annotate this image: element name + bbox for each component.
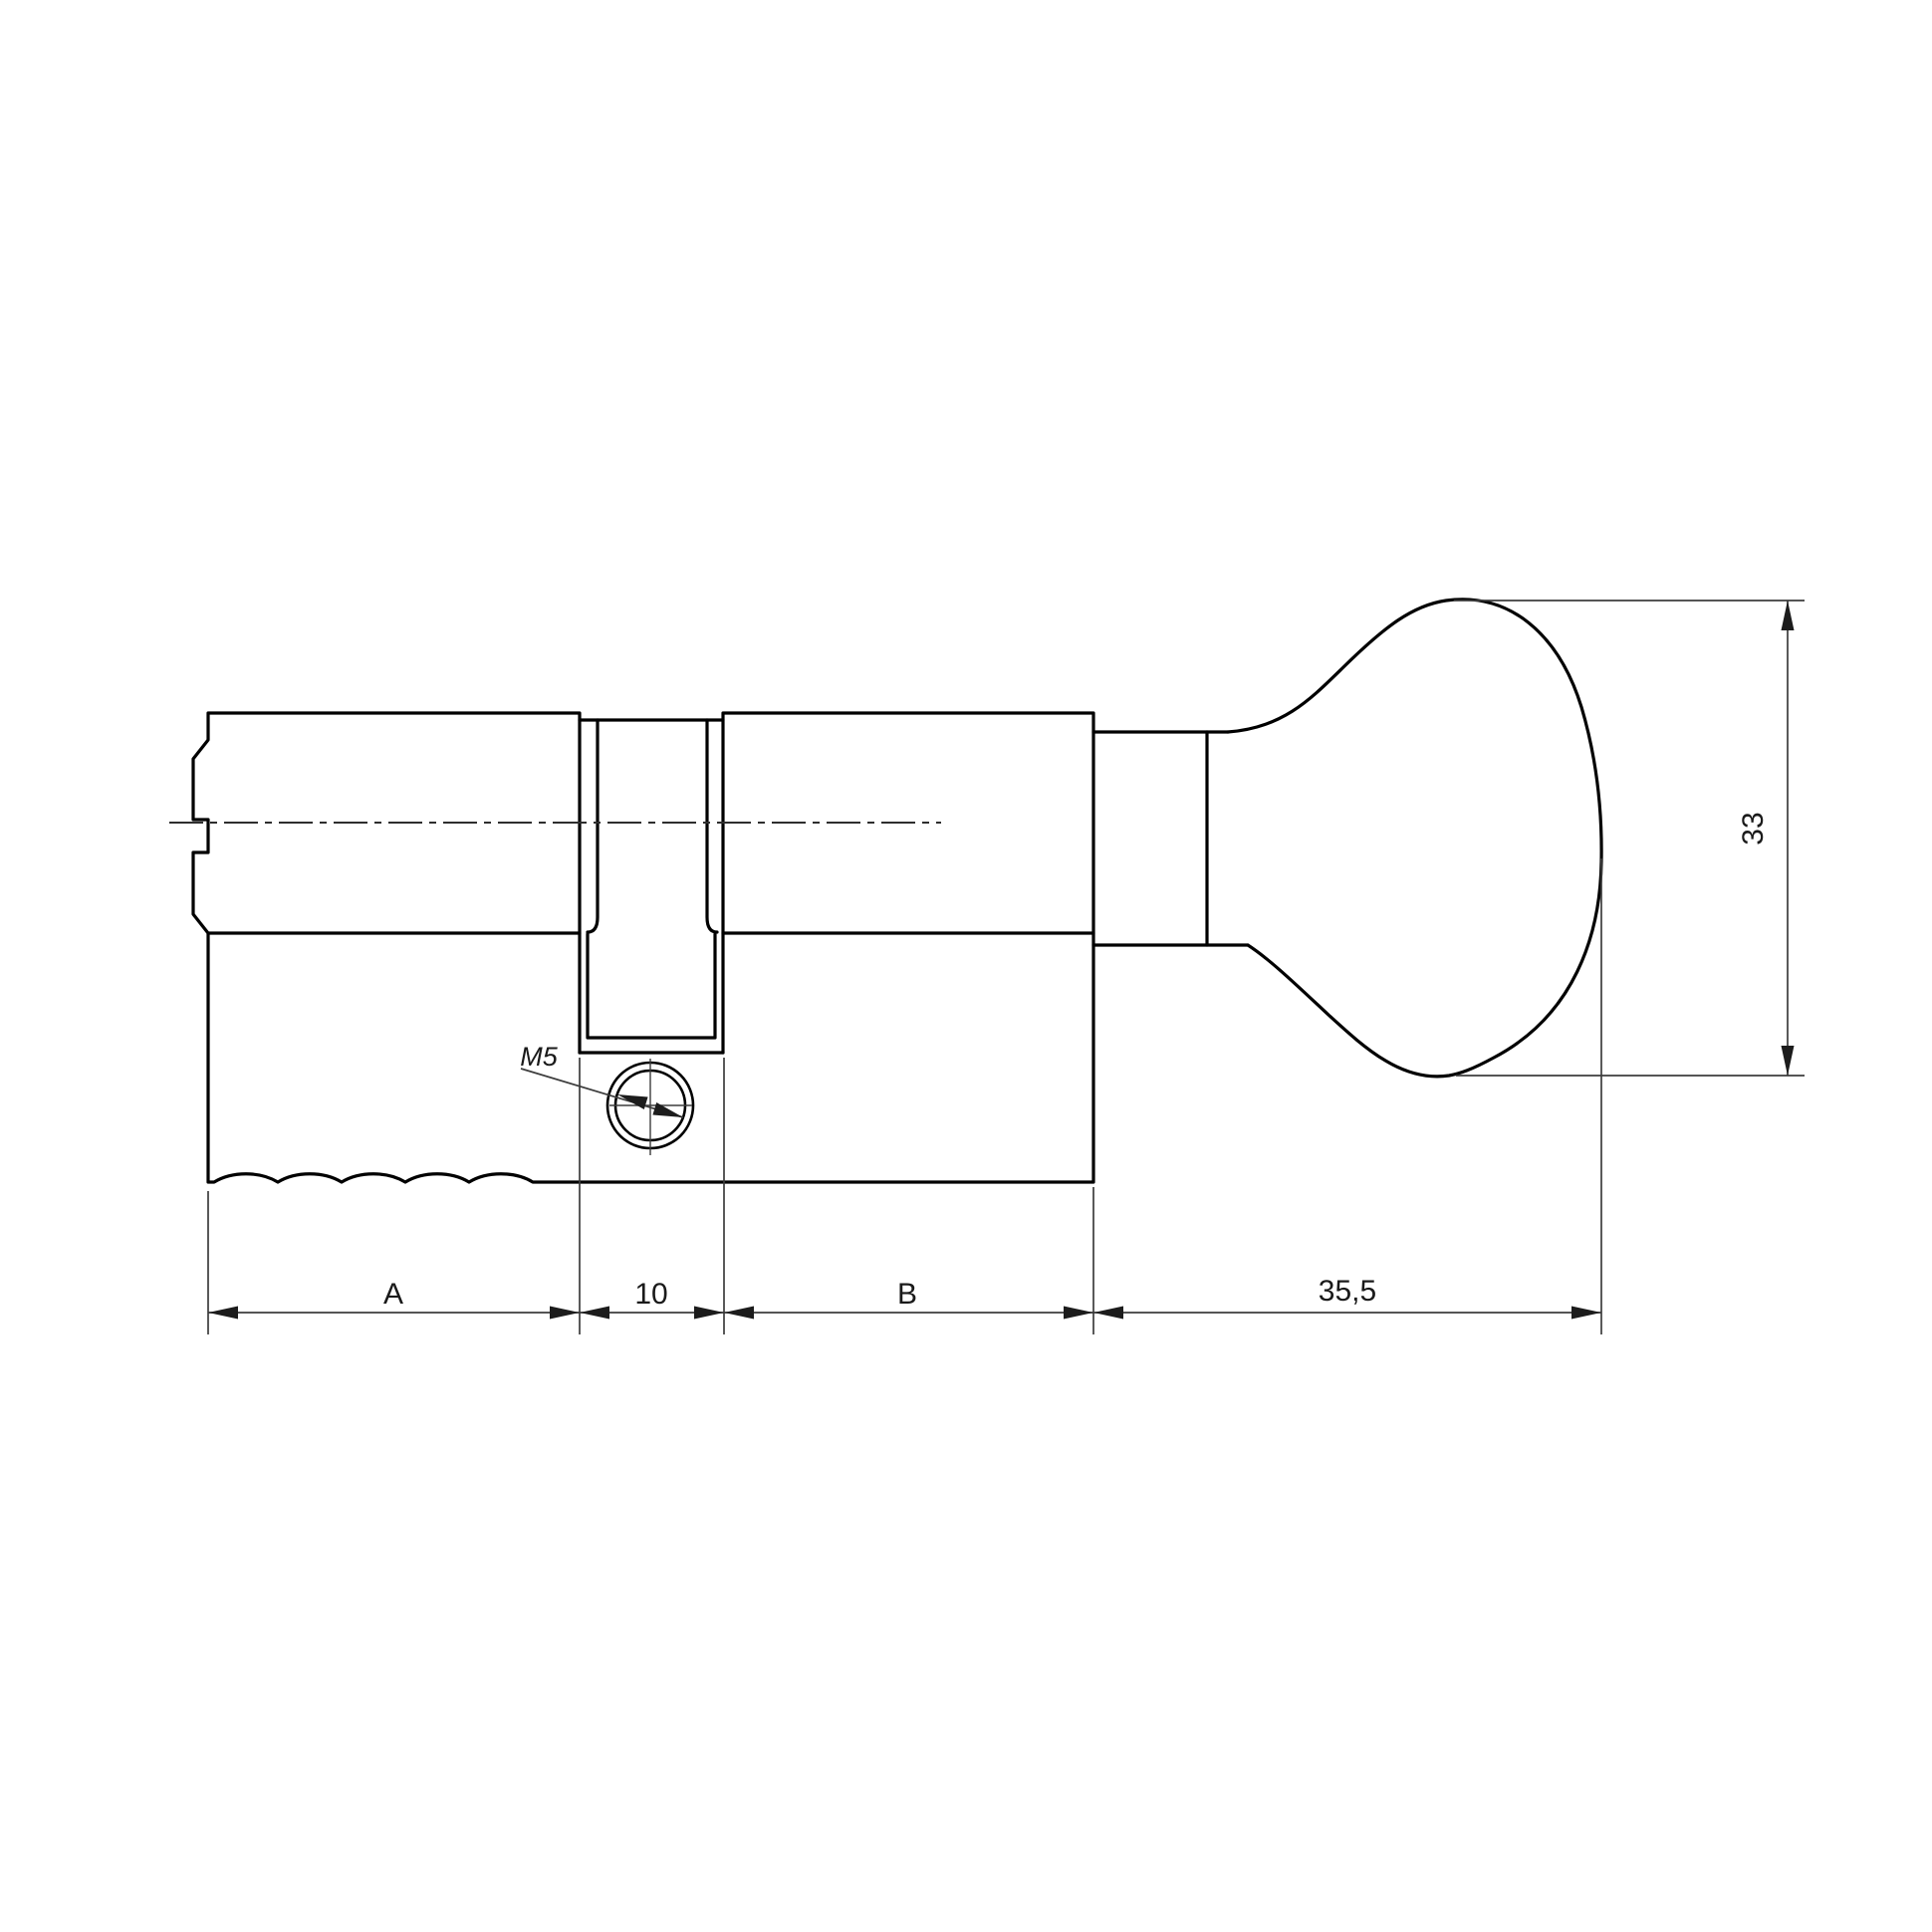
- arrow-b-left: [724, 1307, 754, 1320]
- cam-window: [588, 934, 715, 1038]
- dim-label-b: B: [897, 1278, 917, 1311]
- dim-label-33: 33: [1737, 812, 1770, 845]
- dimension-arrows: [208, 601, 1795, 1320]
- extension-lines: [208, 601, 1805, 1334]
- arrow-33-top: [1782, 601, 1795, 630]
- arrow-a-right: [550, 1307, 580, 1320]
- arrow-355-left: [1093, 1307, 1123, 1320]
- technical-drawing-canvas: A 10 B 35,5 33 M5: [0, 0, 1932, 1932]
- arrow-10-right: [694, 1307, 724, 1320]
- arrow-355-right: [1571, 1307, 1601, 1320]
- technical-drawing-page: A 10 B 35,5 33 M5: [0, 0, 1932, 1932]
- arrow-10-left: [580, 1307, 609, 1320]
- arrow-b-right: [1064, 1307, 1093, 1320]
- cylinder-outline: [193, 713, 1093, 1182]
- knob-outline: [1228, 600, 1601, 1077]
- cam-housing: [580, 720, 723, 1053]
- m5-label: M5: [520, 1042, 558, 1072]
- cam-post-right: [707, 720, 717, 932]
- dimension-labels: A 10 B 35,5 33 M5: [383, 812, 1770, 1311]
- dimension-lines: [208, 601, 1788, 1313]
- m5-thread-hole: [521, 1059, 693, 1155]
- dim-label-a: A: [383, 1278, 403, 1311]
- dim-label-10: 10: [634, 1278, 667, 1311]
- arrow-a-left: [208, 1307, 238, 1320]
- dim-label-35-5: 35,5: [1319, 1275, 1376, 1308]
- cylinder-body: [193, 713, 1093, 1182]
- thumbturn: [1093, 600, 1601, 1077]
- arrow-33-bottom: [1782, 1046, 1795, 1076]
- cam-post-left: [588, 720, 598, 932]
